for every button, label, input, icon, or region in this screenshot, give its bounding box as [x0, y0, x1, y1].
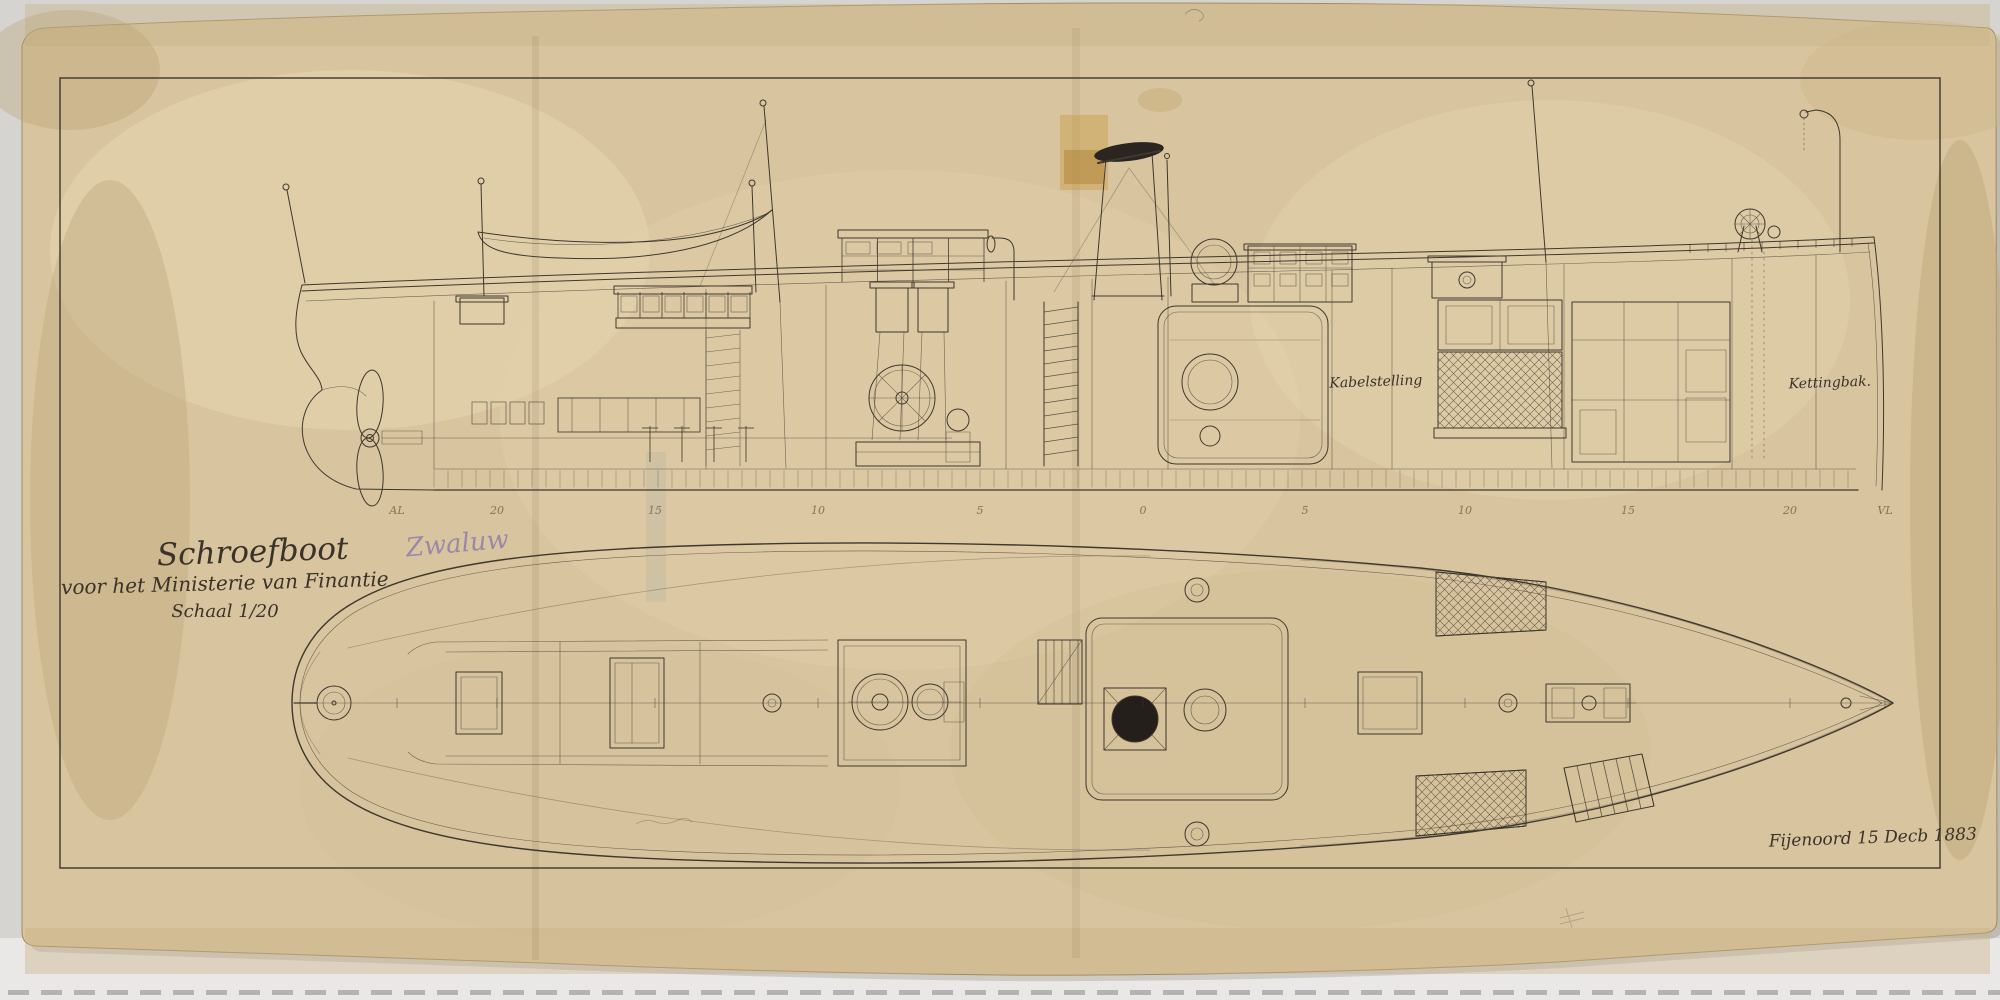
station-label: 15 [648, 504, 662, 517]
crew-space-label: Kabelstelling [1328, 372, 1423, 391]
station-label: 10 [1458, 504, 1472, 517]
station-label: VL [1877, 504, 1892, 517]
berth-crosshatch [1438, 352, 1562, 428]
drawing-title: Schroefboot [156, 531, 349, 574]
paper-sheet [0, 3, 2000, 981]
station-label: 0 [1140, 504, 1147, 517]
bow-crosshatch-top [1436, 572, 1546, 636]
station-label: 15 [1621, 504, 1635, 517]
bow-crosshatch-bottom [1416, 770, 1526, 836]
chain-locker-label: Kettingbak. [1787, 374, 1871, 393]
fold-crease-left [532, 36, 539, 960]
station-label: 5 [1302, 504, 1309, 517]
station-label: 20 [1782, 504, 1797, 517]
station-label: AL [388, 504, 404, 517]
ship-drawing: Schroefboot Zwaluw voor het Ministerie v… [0, 0, 2000, 1000]
scanned-drawing-sheet: Schroefboot Zwaluw voor het Ministerie v… [0, 0, 2000, 1000]
station-label: 20 [489, 504, 504, 517]
scale-label: Schaal 1/20 [171, 601, 278, 622]
station-label: 5 [977, 504, 984, 517]
station-label: 10 [811, 504, 825, 517]
